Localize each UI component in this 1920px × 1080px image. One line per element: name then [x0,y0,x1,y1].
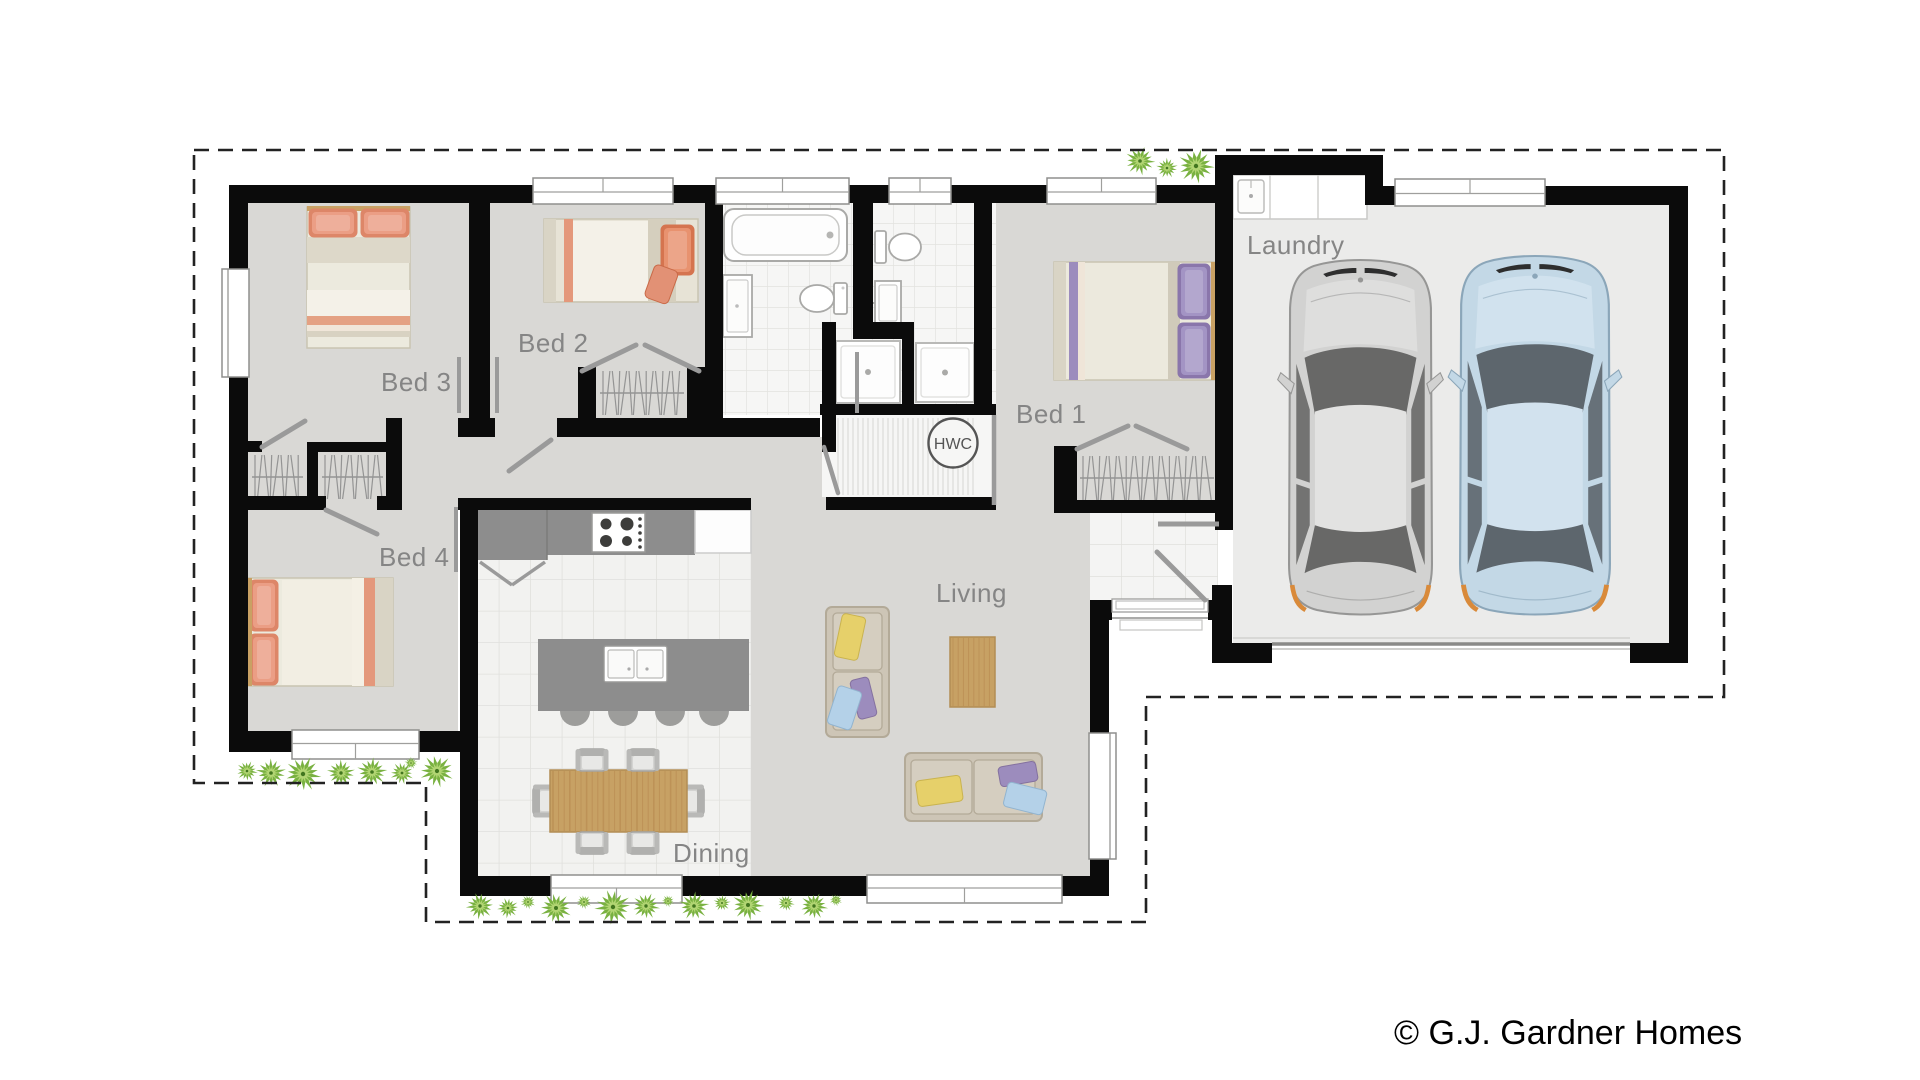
svg-text:Dining: Dining [673,838,750,868]
svg-text:Bed 3: Bed 3 [381,367,451,397]
svg-text:Bed 2: Bed 2 [518,328,588,358]
svg-text:© G.J. Gardner Homes: © G.J. Gardner Homes [1394,1014,1742,1052]
svg-text:HWC: HWC [934,436,972,453]
svg-text:Laundry: Laundry [1247,230,1344,260]
svg-text:Bed 1: Bed 1 [1016,399,1086,429]
svg-text:Bed 4: Bed 4 [379,542,449,572]
svg-text:Living: Living [936,578,1007,608]
